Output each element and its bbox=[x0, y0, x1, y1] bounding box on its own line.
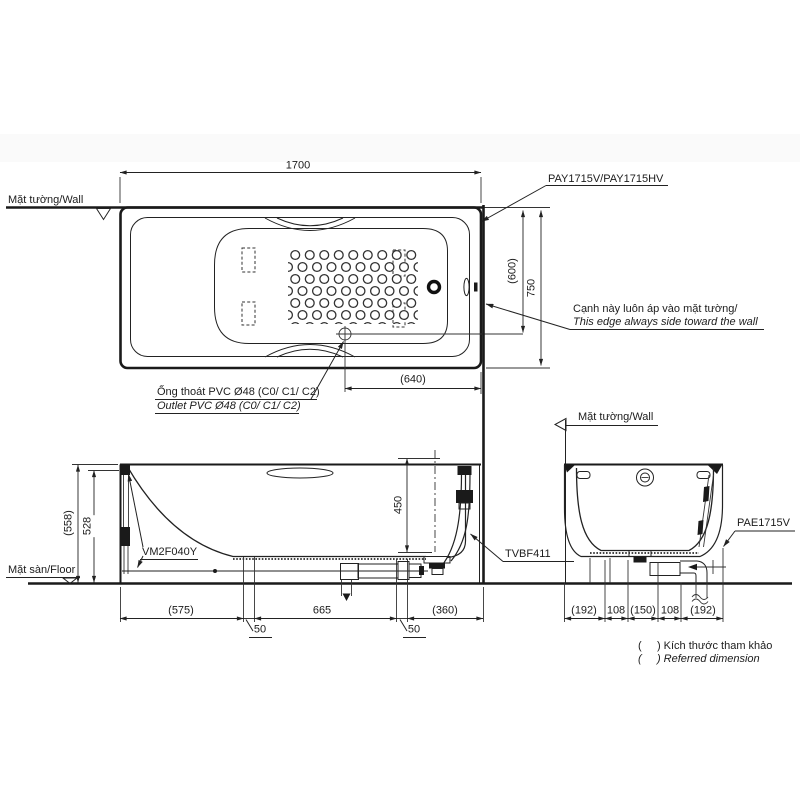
dim-750: 750 bbox=[526, 277, 539, 299]
overflow-slot bbox=[464, 278, 469, 295]
tub-interior-outline-end bbox=[577, 468, 714, 551]
wall-triangle-marker-end bbox=[555, 419, 566, 431]
dim-192-right: (192) bbox=[690, 605, 716, 618]
note-reference-vi: ( ) Kích thước tham khảo bbox=[638, 640, 772, 653]
edge-note-en: This edge always side toward the wall bbox=[573, 316, 758, 329]
wall-label-top-view: Mặt tường/Wall bbox=[8, 194, 83, 207]
down-arrow-icon bbox=[343, 594, 351, 602]
note-reference-en: ( ) Referred dimension bbox=[638, 653, 760, 666]
dim-600: (600) bbox=[507, 256, 520, 286]
dim-360: (360) bbox=[432, 605, 458, 618]
vm2f040y-leader-upper bbox=[129, 474, 144, 547]
dim-108-right: 108 bbox=[661, 605, 679, 618]
floor-label: Mặt sàn/Floor bbox=[8, 564, 75, 577]
dim-528: 528 bbox=[82, 515, 95, 537]
model-label-pae1715v: PAE1715V bbox=[737, 517, 790, 530]
left-arrow-icon bbox=[688, 564, 697, 570]
dim-575: (575) bbox=[168, 605, 194, 618]
edge-note-leader-line bbox=[486, 304, 570, 330]
bathtub-dimension-drawing bbox=[0, 0, 800, 800]
outlet-note-en: Outlet PVC Ø48 (C0/ C1/ C2) bbox=[157, 400, 301, 413]
dim-558: (558) bbox=[63, 508, 76, 538]
waste-piping-end bbox=[629, 551, 726, 605]
dim-450: 450 bbox=[393, 494, 406, 516]
dim-665: 665 bbox=[313, 605, 331, 618]
pae1715v-leader-line bbox=[724, 531, 736, 547]
edge-note-vi: Cạnh này luôn áp vào mặt tường/ bbox=[573, 303, 737, 316]
model-label-pay1715v: PAY1715V/PAY1715HV bbox=[548, 173, 663, 186]
outlet-note-vi: Ống thoát PVC Ø48 (C0/ C1/ C2) bbox=[157, 386, 320, 399]
dim-150: (150) bbox=[630, 605, 656, 618]
wall-label-end-view: Mặt tường/Wall bbox=[578, 411, 653, 424]
rim-recess-oval bbox=[267, 468, 333, 478]
model-leader-line bbox=[482, 186, 547, 222]
dim-108-left: 108 bbox=[607, 605, 625, 618]
anti-slip-dot-pattern bbox=[288, 249, 418, 324]
technical-drawing-page: 1700 Mặt tường/Wall PAY1715V/PAY1715HV (… bbox=[0, 0, 800, 800]
top-view-plan-drawing bbox=[6, 173, 764, 414]
waste-label-tvbf411: TVBF411 bbox=[505, 548, 551, 561]
legs-label-vm2f040y: VM2F040Y bbox=[142, 546, 197, 559]
grip-peg-right bbox=[697, 472, 710, 479]
tvbf411-leader-line bbox=[471, 534, 504, 562]
grip-peg-left bbox=[577, 472, 590, 479]
dim-50-left: 50 bbox=[254, 624, 266, 637]
dim-1700: 1700 bbox=[286, 160, 310, 173]
dim-192-left: (192) bbox=[571, 605, 597, 618]
tub-profile-slope bbox=[127, 466, 426, 557]
leg-set-front bbox=[121, 464, 428, 622]
dim-640: (640) bbox=[400, 374, 426, 387]
drain-hole bbox=[429, 282, 440, 293]
wall-hatch-triangle-top bbox=[97, 209, 111, 220]
dim-50-right: 50 bbox=[408, 624, 420, 637]
